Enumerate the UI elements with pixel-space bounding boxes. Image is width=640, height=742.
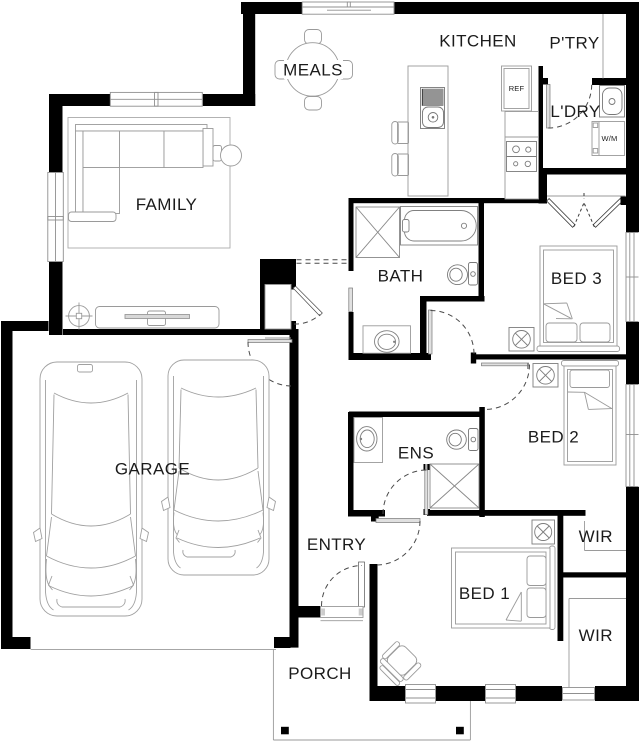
svg-text:WIR: WIR [579, 527, 613, 546]
svg-text:WIR: WIR [579, 626, 613, 645]
svg-text:W/M: W/M [601, 134, 617, 143]
svg-text:REF: REF [509, 84, 525, 93]
svg-text:ENTRY: ENTRY [307, 535, 366, 554]
svg-text:GARAGE: GARAGE [115, 460, 190, 479]
svg-text:FAMILY: FAMILY [136, 195, 198, 214]
svg-text:BATH: BATH [378, 267, 424, 286]
svg-text:BED 3: BED 3 [551, 269, 602, 288]
svg-text:MEALS: MEALS [283, 61, 343, 80]
svg-text:BED 2: BED 2 [528, 428, 579, 447]
svg-text:ENS: ENS [398, 444, 434, 463]
svg-text:PORCH: PORCH [288, 664, 351, 683]
svg-text:P'TRY: P'TRY [549, 34, 599, 53]
svg-text:L'DRY: L'DRY [550, 102, 600, 121]
svg-text:BED 1: BED 1 [459, 584, 510, 603]
svg-text:KITCHEN: KITCHEN [439, 32, 516, 51]
